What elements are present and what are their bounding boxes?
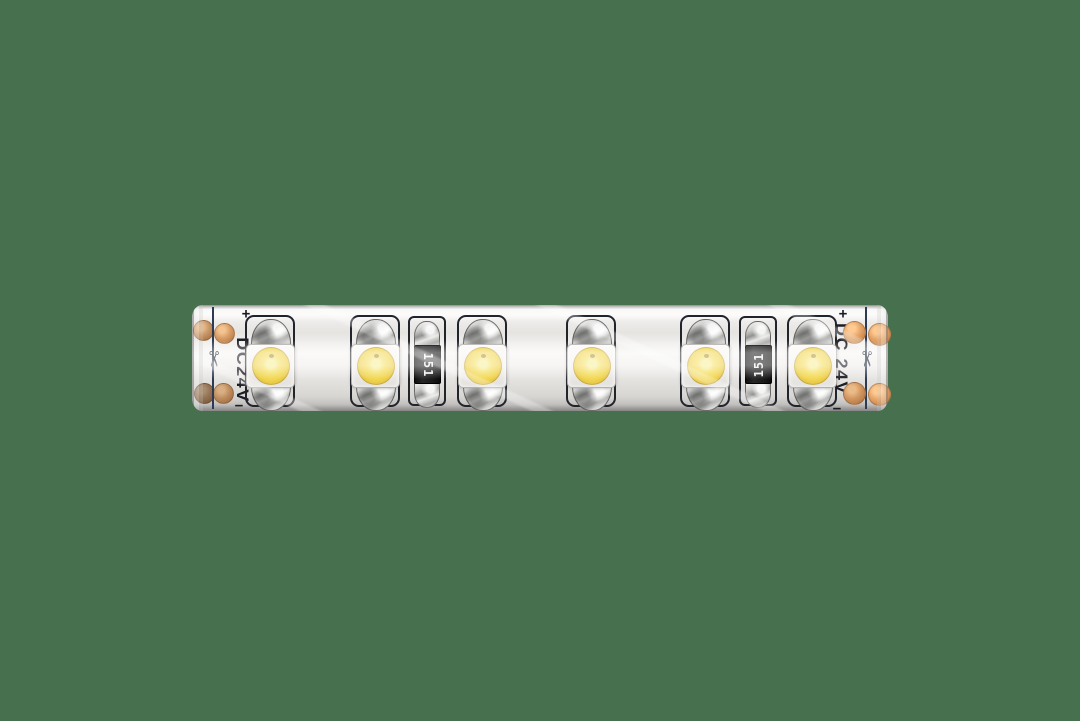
led-package: [246, 344, 295, 388]
bond-wire-mark: [590, 354, 595, 358]
strip-end-shading: [192, 305, 888, 411]
led-package: [567, 344, 616, 388]
copper-pad-dot: [843, 382, 866, 405]
resistor-body: 151: [414, 345, 441, 384]
led-module: [679, 305, 731, 411]
resistor-module: 151: [738, 305, 778, 411]
resistor-end-cap-bottom: [745, 380, 771, 408]
voltage-marking: DC 24V+−: [192, 305, 888, 411]
bond-wire-mark: [481, 354, 486, 358]
led-module: [565, 305, 617, 411]
led-phosphor-dot: [464, 347, 502, 385]
led-phosphor-dot: [252, 347, 290, 385]
led-module: [244, 305, 296, 411]
bond-wire-mark: [811, 354, 816, 358]
led-package: [788, 344, 837, 388]
polarity-plus: +: [839, 307, 848, 322]
copper-pad-dot: [868, 323, 891, 346]
resistor-module: 151: [407, 305, 447, 411]
resistor-end-cap-bottom: [414, 380, 440, 408]
resistor-code-label: 151: [752, 352, 766, 377]
led-phosphor-dot: [687, 347, 725, 385]
bond-wire-mark: [374, 354, 379, 358]
led-package: [351, 344, 400, 388]
copper-pad-dot: [193, 320, 214, 341]
scissors-cut-icon: ✂: [203, 350, 224, 368]
copper-pad-dot: [214, 323, 235, 344]
resistor-body: 151: [745, 345, 772, 384]
voltage-marking: DC24V+−: [192, 305, 888, 411]
cut-line: ✂: [865, 307, 867, 409]
bond-wire-mark: [269, 354, 274, 358]
copper-pad-dot: [213, 383, 234, 404]
silicone-gloss-band: [192, 305, 888, 411]
led-module: [349, 305, 401, 411]
copper-pad-dot: [868, 383, 891, 406]
led-module: [456, 305, 508, 411]
led-phosphor-dot: [794, 347, 832, 385]
polarity-minus: −: [235, 399, 244, 414]
silicone-gloss-streaks: [192, 305, 888, 411]
copper-pad-dot: [843, 321, 866, 344]
copper-pad-group-left: [192, 305, 888, 411]
cut-line: ✂: [212, 307, 214, 409]
scissors-cut-icon: ✂: [856, 350, 877, 368]
led-package: [681, 344, 730, 388]
led-module: [786, 305, 838, 411]
bond-wire-mark: [704, 354, 709, 358]
resistor-code-label: 151: [421, 352, 435, 377]
led-strip-body: ✂DC24V+−151151DC 24V+−✂: [192, 305, 888, 411]
copper-pad-group-right: [192, 305, 888, 411]
led-package: [458, 344, 507, 388]
product-photo-background: ✂DC24V+−151151DC 24V+−✂: [0, 0, 1080, 721]
led-phosphor-dot: [357, 347, 395, 385]
led-phosphor-dot: [573, 347, 611, 385]
